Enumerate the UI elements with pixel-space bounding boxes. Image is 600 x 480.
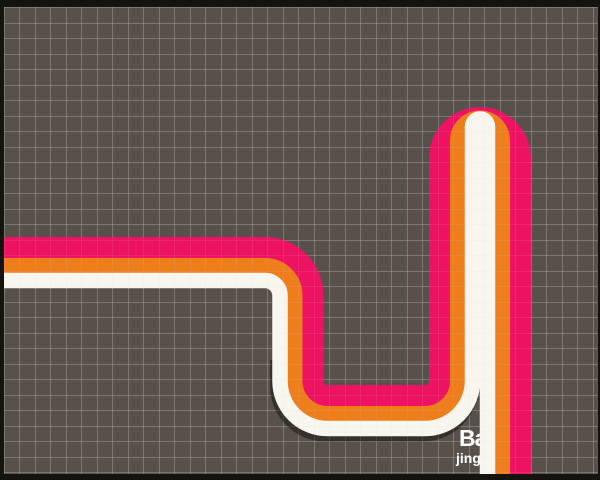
grid-paper-scene: Ba jing — [0, 0, 600, 480]
route-canvas: Ba jing — [0, 0, 600, 480]
grid-overlay — [0, 0, 600, 480]
